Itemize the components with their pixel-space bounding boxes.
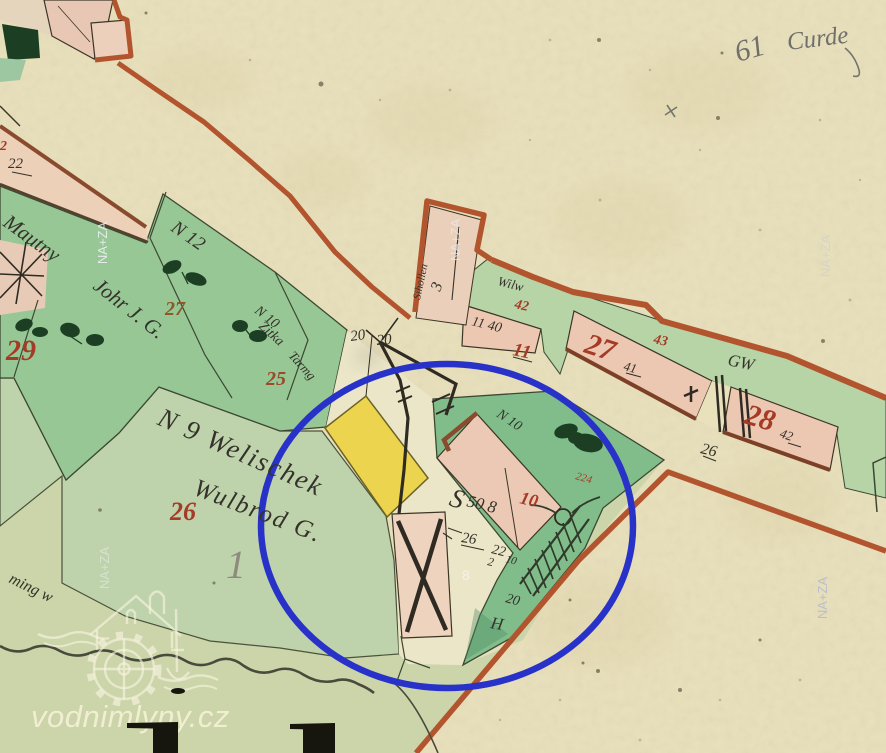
svg-text:NA+ZA: NA+ZA xyxy=(97,547,112,590)
svg-text:43: 43 xyxy=(651,332,669,350)
svg-text:42: 42 xyxy=(512,297,530,315)
svg-text:22: 22 xyxy=(8,156,24,172)
svg-text:1: 1 xyxy=(226,542,246,587)
svg-text:29: 29 xyxy=(5,334,36,367)
svg-text:8: 8 xyxy=(462,567,470,583)
svg-text:NA+ZA: NA+ZA xyxy=(95,222,110,265)
svg-text:26: 26 xyxy=(169,497,196,526)
svg-text:vodnimlyny.cz: vodnimlyny.cz xyxy=(31,699,230,734)
svg-text:20: 20 xyxy=(376,332,393,349)
svg-text:NA+ZA: NA+ZA xyxy=(818,235,833,278)
svg-text:27: 27 xyxy=(164,298,186,320)
svg-text:2: 2 xyxy=(0,139,7,154)
svg-text:NA+ZA: NA+ZA xyxy=(815,577,830,620)
svg-text:NA+ZA: NA+ZA xyxy=(448,219,463,262)
svg-text:25: 25 xyxy=(265,368,286,390)
svg-text:20: 20 xyxy=(349,327,367,345)
